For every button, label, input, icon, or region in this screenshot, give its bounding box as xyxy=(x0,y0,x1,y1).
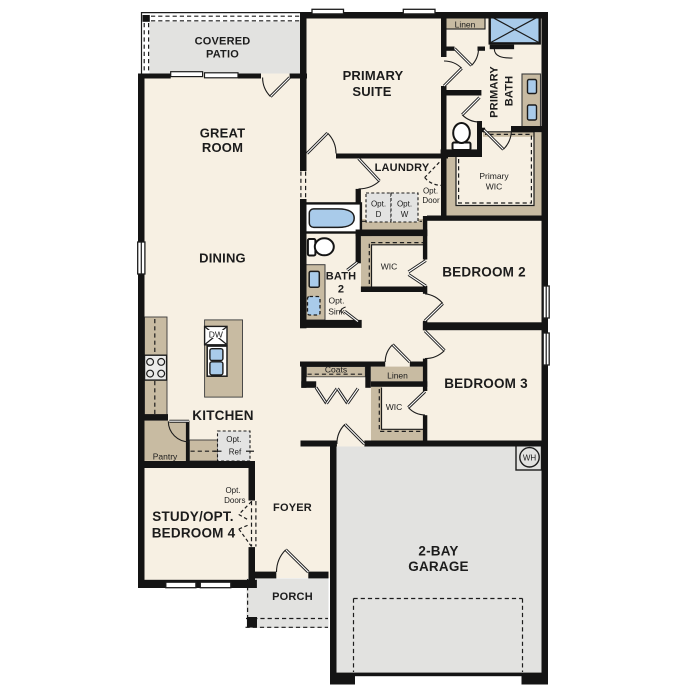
svg-text:STUDY/OPT.: STUDY/OPT. xyxy=(152,509,234,524)
svg-text:Pantry: Pantry xyxy=(153,452,178,462)
svg-text:Linen: Linen xyxy=(387,371,408,381)
svg-text:WIC: WIC xyxy=(386,402,403,412)
svg-text:GARAGE: GARAGE xyxy=(408,559,468,574)
svg-text:Opt.: Opt. xyxy=(397,200,412,209)
svg-text:SUITE: SUITE xyxy=(352,84,391,99)
svg-text:Ref: Ref xyxy=(229,448,242,457)
svg-text:W: W xyxy=(401,210,409,219)
svg-text:Opt.: Opt. xyxy=(371,200,386,209)
svg-text:BEDROOM 4: BEDROOM 4 xyxy=(152,526,236,541)
svg-text:Opt.: Opt. xyxy=(226,435,241,444)
svg-text:BATH: BATH xyxy=(504,76,516,107)
svg-text:LAUNDRY: LAUNDRY xyxy=(375,162,430,174)
svg-text:WIC: WIC xyxy=(381,262,398,272)
svg-text:DINING: DINING xyxy=(199,251,246,266)
svg-text:Sink: Sink xyxy=(328,307,345,317)
svg-text:Door: Door xyxy=(422,196,440,205)
svg-text:D: D xyxy=(376,210,382,219)
svg-text:ROOM: ROOM xyxy=(202,140,243,155)
svg-text:PRIMARY: PRIMARY xyxy=(343,68,404,83)
svg-text:Linen: Linen xyxy=(455,20,476,30)
svg-text:Primary: Primary xyxy=(479,171,509,181)
svg-text:WIC: WIC xyxy=(486,182,503,192)
svg-text:2-BAY: 2-BAY xyxy=(418,544,458,559)
svg-text:PATIO: PATIO xyxy=(206,49,239,61)
svg-text:BEDROOM 2: BEDROOM 2 xyxy=(442,265,526,280)
svg-text:PORCH: PORCH xyxy=(272,591,313,603)
svg-text:BEDROOM 3: BEDROOM 3 xyxy=(444,376,528,391)
svg-text:2: 2 xyxy=(338,284,344,296)
svg-text:DW: DW xyxy=(209,330,223,340)
svg-text:PRIMARY: PRIMARY xyxy=(489,66,501,118)
svg-text:Doors: Doors xyxy=(224,496,245,505)
svg-text:FOYER: FOYER xyxy=(273,502,312,514)
svg-text:KITCHEN: KITCHEN xyxy=(192,408,253,423)
svg-text:Opt.: Opt. xyxy=(328,296,344,306)
svg-text:Coats: Coats xyxy=(325,365,347,375)
svg-text:Opt.: Opt. xyxy=(423,187,438,196)
svg-text:BATH: BATH xyxy=(326,271,357,283)
svg-text:GREAT: GREAT xyxy=(200,126,246,141)
svg-text:COVERED: COVERED xyxy=(195,36,251,48)
svg-text:WH: WH xyxy=(523,454,537,463)
svg-text:Opt.: Opt. xyxy=(225,486,240,495)
